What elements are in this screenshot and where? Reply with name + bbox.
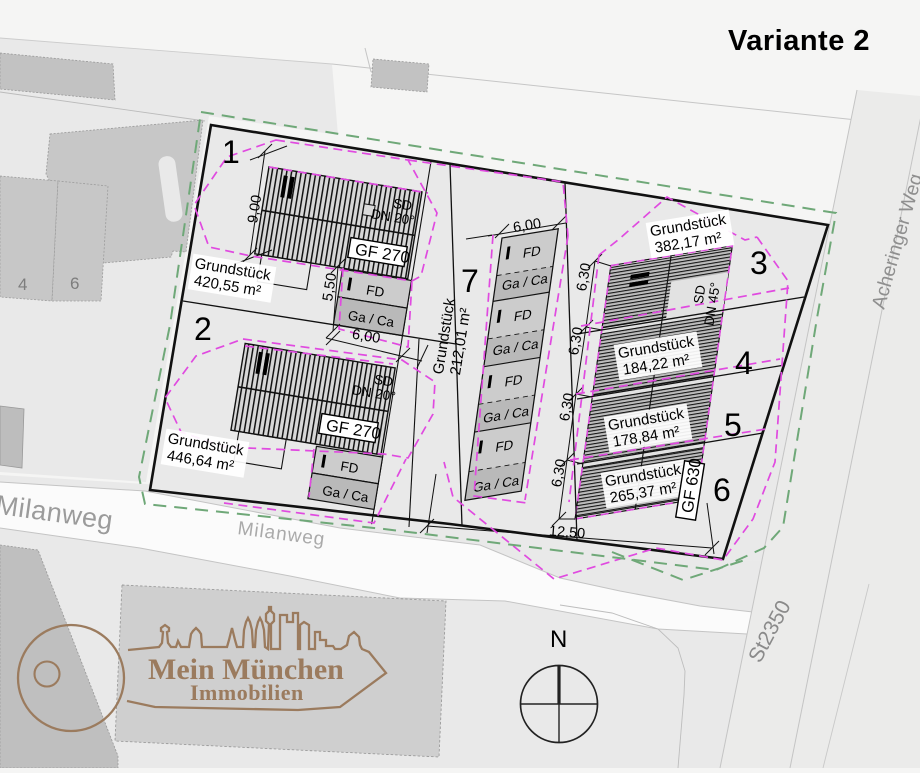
svg-text:12,50: 12,50 <box>548 523 585 542</box>
svg-text:4: 4 <box>735 345 753 381</box>
svg-text:7: 7 <box>461 263 479 299</box>
svg-text:3: 3 <box>750 245 768 281</box>
svg-text:Immobilien: Immobilien <box>190 680 304 705</box>
svg-text:2: 2 <box>194 311 212 347</box>
svg-text:Variante 2: Variante 2 <box>728 25 870 57</box>
svg-text:FD: FD <box>339 459 359 477</box>
svg-text:N: N <box>550 626 567 653</box>
svg-text:6: 6 <box>713 472 731 508</box>
svg-text:4: 4 <box>18 275 27 294</box>
svg-text:6: 6 <box>70 274 79 293</box>
svg-text:5: 5 <box>724 407 742 443</box>
svg-text:1: 1 <box>222 134 240 170</box>
svg-text:FD: FD <box>365 282 385 300</box>
